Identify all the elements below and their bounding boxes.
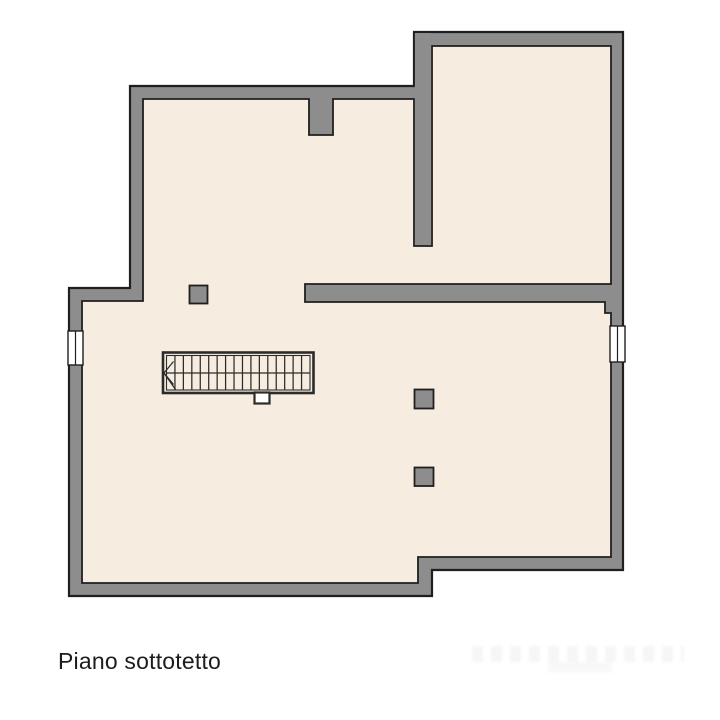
window-left [68,331,83,365]
watermark [472,646,684,662]
floorplan-drawing [0,0,720,720]
pillar-3 [415,468,434,487]
floor-label: Piano sottotetto [58,648,221,675]
floor-plan-canvas: Piano sottotetto [0,0,720,720]
pillar-2 [415,390,434,409]
pillar-1 [190,286,208,304]
stair-landing-tab [255,393,270,404]
interior-wall-partition [306,285,610,301]
floor-area [82,46,611,583]
window-right [610,326,625,362]
watermark-fragment [548,662,612,672]
interior-wall-divider [415,33,431,245]
wall-stub [310,100,332,135]
